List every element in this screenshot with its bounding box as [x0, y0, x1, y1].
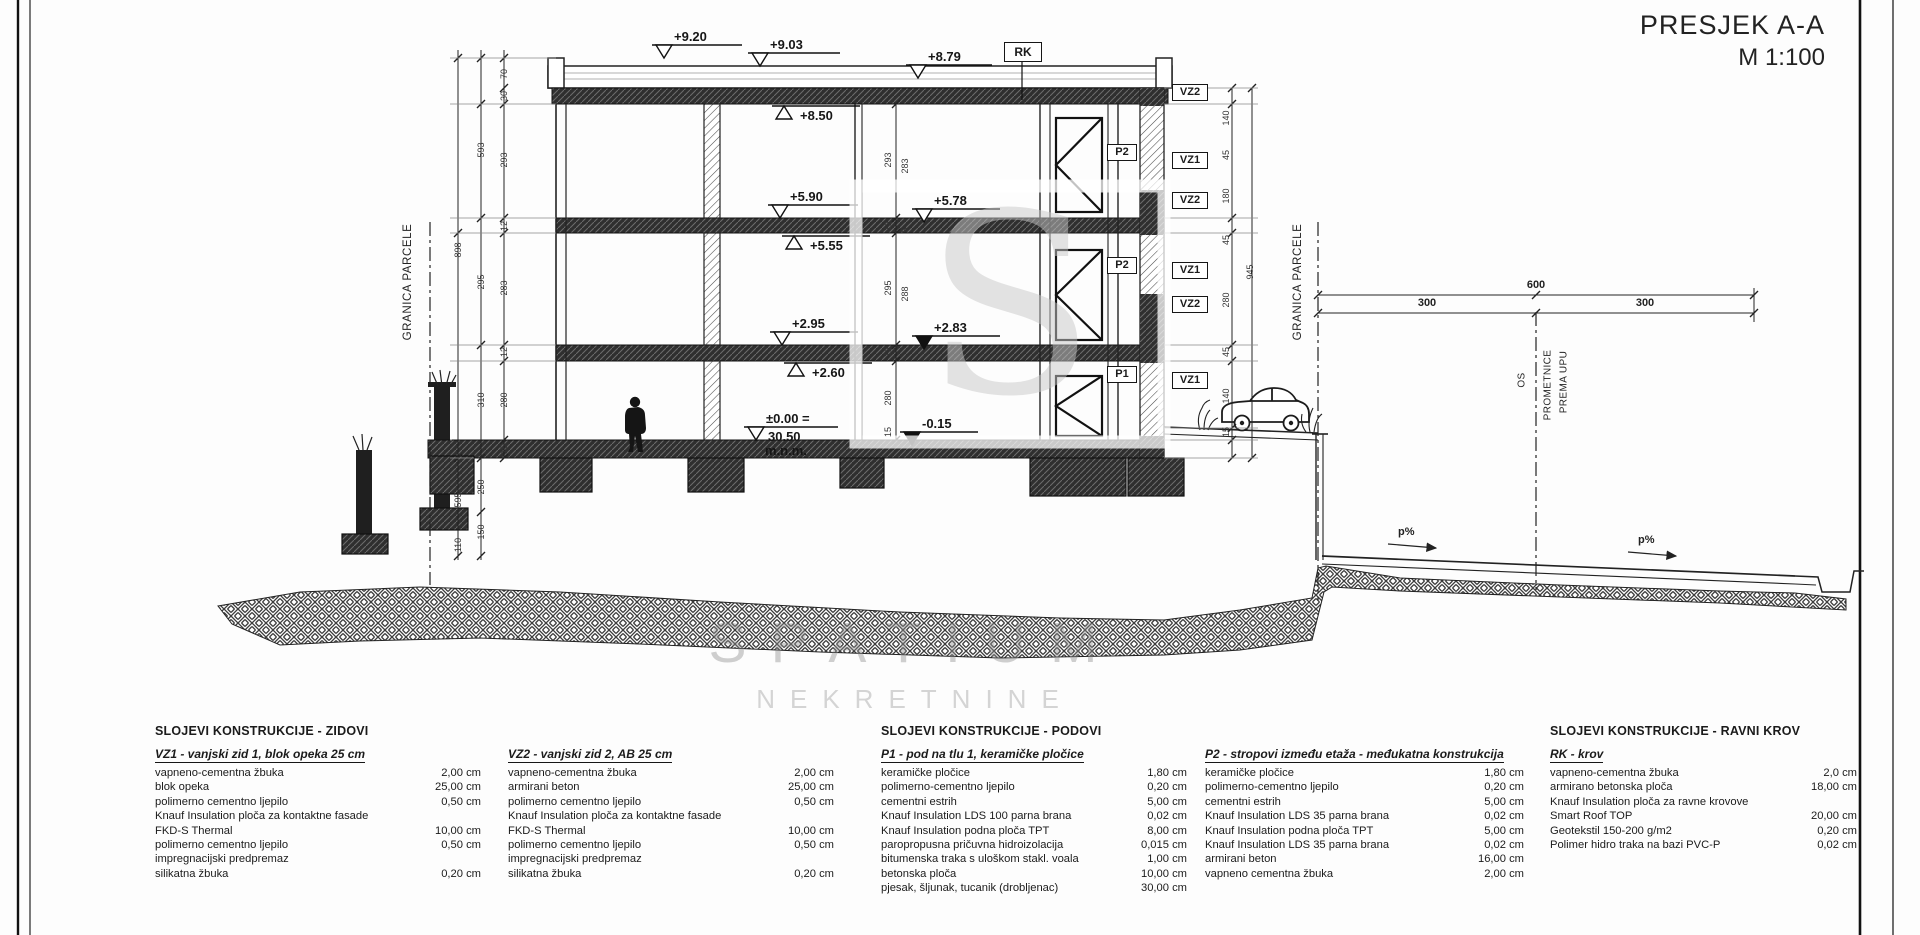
slope-label-right: p%	[1638, 534, 1655, 546]
elevation-terrace3: +5.78	[934, 193, 967, 208]
label-vz-2: VZ2	[1172, 192, 1208, 209]
slope-arrows	[1388, 544, 1676, 556]
spec-row: Polimer hidro traka na bazi PVC-P0,02 cm	[1550, 838, 1857, 852]
elevation-entry: -0.15	[922, 416, 952, 431]
dim-number: 293	[499, 152, 509, 167]
road-axis-os: OS	[1517, 372, 1528, 387]
label-vz-1: VZ1	[1172, 152, 1208, 169]
spec-section-header: SLOJEVI KONSTRUKCIJE - RAVNI KROV	[1550, 724, 1857, 745]
dim-number: 12	[883, 221, 893, 231]
drawing-title: PRESJEK A-A	[1400, 10, 1825, 41]
spec-assembly-title: VZ2 - vanjski zid 2, AB 25 cm	[508, 745, 834, 766]
spec-row: vapneno cementna žbuka2,00 cm	[1205, 867, 1524, 881]
spec-column-1: VZ2 - vanjski zid 2, AB 25 cmvapneno-cem…	[508, 724, 834, 881]
label-rk: RK	[1004, 42, 1042, 62]
dim-number: 140	[1221, 388, 1231, 403]
dim-number: 898	[453, 242, 463, 257]
dim-number: 70	[499, 69, 509, 79]
watermark-line2: NEKRETNINE	[715, 684, 1115, 715]
elevation-ceiling2: +5.55	[810, 238, 843, 253]
spec-row: Knauf Insulation ploča za ravne krovove	[1550, 795, 1857, 809]
elevation-floor3: +5.90	[790, 189, 823, 204]
spec-row: Knauf Insulation podna ploča TPT8,00 cm	[881, 824, 1187, 838]
road-section	[1164, 427, 1864, 592]
spec-assembly-title: VZ1 - vanjski zid 1, blok opeka 25 cm	[155, 745, 481, 766]
road-axis-prometnice: PROMETNICE	[1543, 350, 1554, 421]
dim-number: 180	[1221, 188, 1231, 203]
road-dim-right: 300	[1636, 297, 1654, 309]
dim-number: 283	[499, 280, 509, 295]
dim-number: 150	[476, 524, 486, 539]
spec-section-header	[508, 724, 834, 745]
label-p2-lower: P2	[1107, 257, 1137, 274]
elevation-roof-ceiling: +8.50	[800, 108, 833, 123]
spec-section-header	[1205, 724, 1524, 745]
spec-row: vapneno-cementna žbuka2,0 cm	[1550, 766, 1857, 780]
spec-row: cementni estrih5,00 cm	[1205, 795, 1524, 809]
boundary-label-right: GRANICA PARCELE	[1292, 224, 1304, 341]
spec-row: Geotekstil 150-200 g/m20,20 cm	[1550, 824, 1857, 838]
road-dim-left: 300	[1418, 297, 1436, 309]
dim-number: 310	[476, 392, 486, 407]
spec-row: silikatna žbuka0,20 cm	[508, 867, 834, 881]
spec-row: armirani beton25,00 cm	[508, 780, 834, 794]
dim-number: 280	[1221, 292, 1231, 307]
dim-number: 295	[476, 274, 486, 289]
spec-column-0: SLOJEVI KONSTRUKCIJE - ZIDOVIVZ1 - vanjs…	[155, 724, 481, 881]
label-vz-5: VZ1	[1172, 372, 1208, 389]
dim-number: 15	[499, 444, 509, 454]
spec-row: Knauf Insulation LDS 100 parna brana0,02…	[881, 809, 1187, 823]
dim-number: 250	[476, 479, 486, 494]
dim-number: 593	[476, 142, 486, 157]
dim-number: 45	[1221, 235, 1231, 245]
spec-row: polimerno-cementno ljepilo0,20 cm	[1205, 780, 1524, 794]
spec-row: cementni estrih5,00 cm	[881, 795, 1187, 809]
blueprint-page: S PRESJEK A-A M 1:100 +9.20 +9.03 +8.79 …	[0, 0, 1920, 935]
spec-row: impregnacijski predpremaz	[508, 852, 834, 866]
dim-number: 30	[499, 91, 509, 101]
dim-number: 595	[453, 492, 463, 507]
spec-row: paropropusna pričuvna hidroizolacija0,01…	[881, 838, 1187, 852]
dim-number: 45	[1221, 150, 1231, 160]
spec-column-4: SLOJEVI KONSTRUKCIJE - RAVNI KROVRK - kr…	[1550, 724, 1857, 852]
spec-row: polimerno cementno ljepilo0,50 cm	[508, 795, 834, 809]
dim-number: 280	[499, 392, 509, 407]
dim-number: 295	[883, 280, 893, 295]
elevation-zero: ±0.00 =	[766, 411, 810, 426]
spec-row: pjesak, šljunak, tucanik (drobljenac)30,…	[881, 881, 1187, 895]
elevation-roof-top: +9.03	[770, 37, 803, 52]
dim-number: 283	[900, 158, 910, 173]
spec-row: polimerno-cementno ljepilo0,20 cm	[881, 780, 1187, 794]
elevation-zero-unit: m.n.m.	[765, 443, 807, 458]
spec-row: bitumenska traka s uloškom stakl. voala1…	[881, 852, 1187, 866]
spec-row: Knauf Insulation ploča za kontaktne fasa…	[508, 809, 834, 823]
watermark-line1: SPATIUM	[700, 610, 1130, 676]
spec-row: blok opeka25,00 cm	[155, 780, 481, 794]
spec-assembly-title: P1 - pod na tlu 1, keramičke pločice	[881, 745, 1187, 766]
spec-section-header: SLOJEVI KONSTRUKCIJE - PODOVI	[881, 724, 1187, 745]
dim-number: 12	[499, 221, 509, 231]
spec-row: FKD-S Thermal10,00 cm	[508, 824, 834, 838]
elevation-ceiling1: +2.60	[812, 365, 845, 380]
dim-number: 945	[1245, 264, 1255, 279]
title-block: PRESJEK A-A M 1:100	[1400, 10, 1825, 72]
footings	[430, 456, 1184, 496]
spec-row: betonska ploča10,00 cm	[881, 867, 1187, 881]
dim-number: 45	[1221, 347, 1231, 357]
roof	[548, 58, 1172, 104]
spec-row: vapneno-cementna žbuka2,00 cm	[155, 766, 481, 780]
label-p2-upper: P2	[1107, 144, 1137, 161]
label-p1: P1	[1107, 366, 1137, 383]
spec-column-3: P2 - stropovi između etaža - međukatna k…	[1205, 724, 1524, 881]
dim-number: 280	[883, 390, 893, 405]
spec-assembly-title: P2 - stropovi između etaža - međukatna k…	[1205, 745, 1524, 766]
spec-row: keramičke pločice1,80 cm	[881, 766, 1187, 780]
spec-row: armirani beton16,00 cm	[1205, 852, 1524, 866]
dim-number: 12	[883, 347, 893, 357]
elevation-parapet: +9.20	[674, 29, 707, 44]
label-vz-4: VZ2	[1172, 296, 1208, 313]
spec-row: polimerno cementno ljepilo0,50 cm	[155, 795, 481, 809]
label-vz-0: VZ2	[1172, 84, 1208, 101]
spec-row: polimerno cementno ljepilo0,50 cm	[508, 838, 834, 852]
dim-number: 293	[883, 152, 893, 167]
spec-row: polimerno cementno ljepilo0,50 cm	[155, 838, 481, 852]
slope-label-left: p%	[1398, 526, 1415, 538]
dim-number: 15	[883, 427, 893, 437]
elevation-terrace2: +2.83	[934, 320, 967, 335]
road-axis-prema-upu: PREMA UPU	[1559, 351, 1570, 414]
spec-row: FKD-S Thermal10,00 cm	[155, 824, 481, 838]
spec-row: Smart Roof TOP20,00 cm	[1550, 809, 1857, 823]
spec-row: Knauf Insulation ploča za kontaktne fasa…	[155, 809, 481, 823]
label-vz-3: VZ1	[1172, 262, 1208, 279]
dim-number: 140	[1221, 110, 1231, 125]
spec-row: keramičke pločice1,80 cm	[1205, 766, 1524, 780]
road-dim-total: 600	[1527, 279, 1545, 291]
elevation-roof-slab: +8.79	[928, 49, 961, 64]
spec-row: impregnacijski predpremaz	[155, 852, 481, 866]
spec-row: armirano betonska ploča18,00 cm	[1550, 780, 1857, 794]
spec-row: Knauf Insulation podna ploča TPT5,00 cm	[1205, 824, 1524, 838]
spec-row: vapneno-cementna žbuka2,00 cm	[508, 766, 834, 780]
elevation-zero-value: 30.50	[768, 429, 801, 444]
spec-section-header: SLOJEVI KONSTRUKCIJE - ZIDOVI	[155, 724, 481, 745]
drawing-scale: M 1:100	[1400, 44, 1825, 72]
spec-column-2: SLOJEVI KONSTRUKCIJE - PODOVIP1 - pod na…	[881, 724, 1187, 896]
spec-row: silikatna žbuka0,20 cm	[155, 867, 481, 881]
dim-number: 110	[453, 538, 463, 552]
elevation-floor2: +2.95	[792, 316, 825, 331]
spec-row: Knauf Insulation LDS 35 parna brana0,02 …	[1205, 809, 1524, 823]
dim-number: 15	[1221, 427, 1231, 437]
dim-number: 288	[900, 286, 910, 301]
boundary-label-left: GRANICA PARCELE	[402, 224, 414, 341]
spec-row: Knauf Insulation LDS 35 parna brana0,02 …	[1205, 838, 1524, 852]
dim-number: 5	[900, 227, 910, 232]
dim-number: 12	[499, 347, 509, 357]
spec-assembly-title: RK - krov	[1550, 745, 1857, 766]
